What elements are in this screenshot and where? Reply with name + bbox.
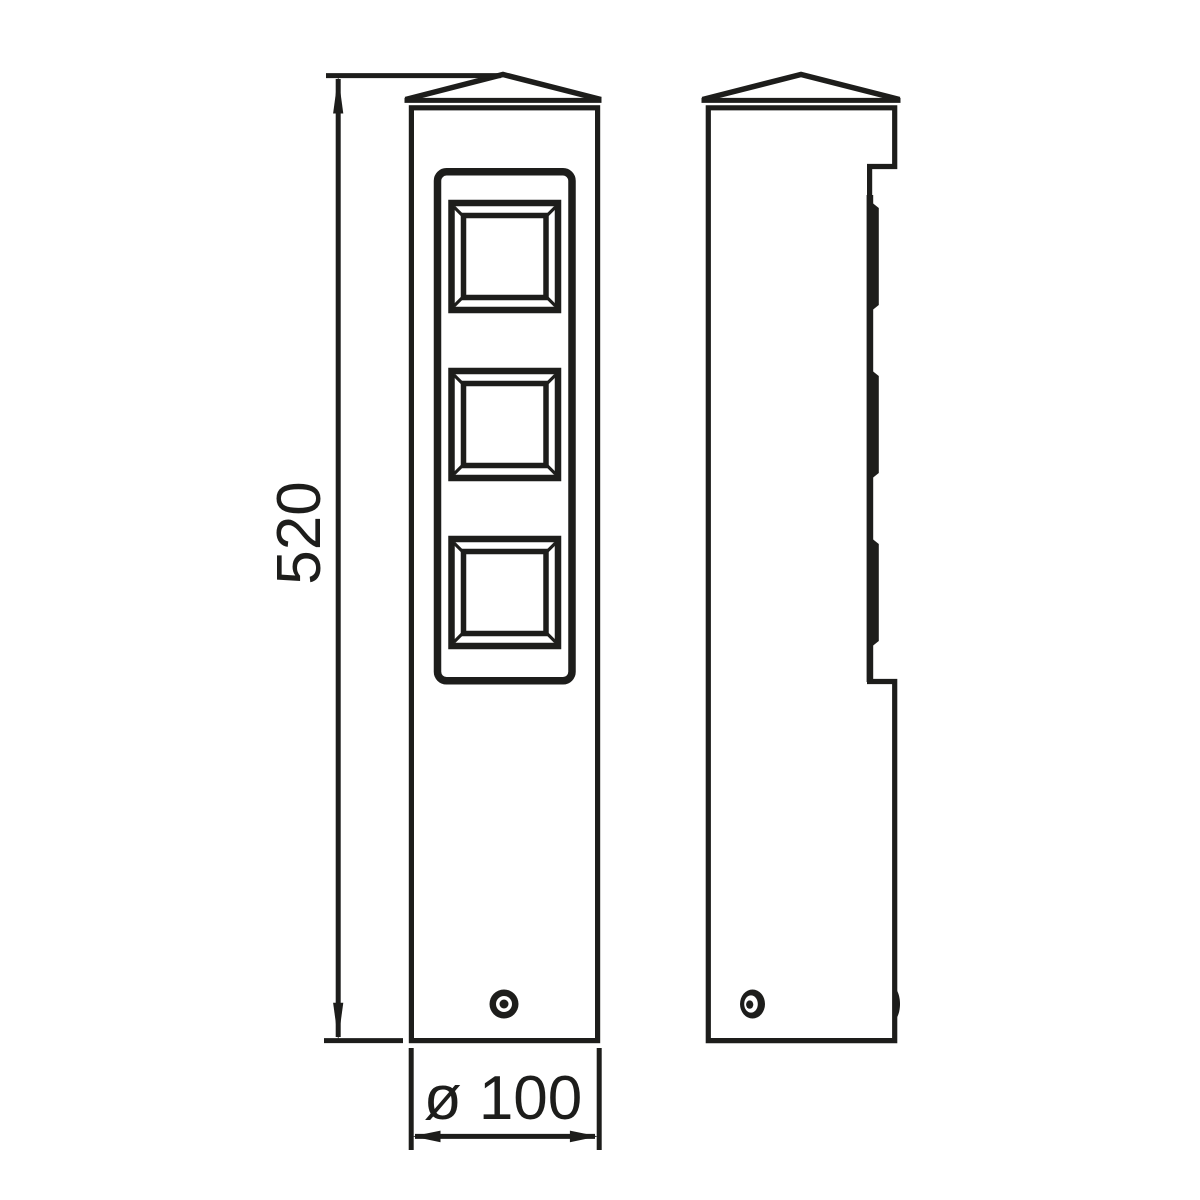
bevel-rib-3: [870, 537, 879, 648]
side-screw-bump: [893, 986, 901, 1022]
height-dimension-label: 520: [265, 481, 334, 584]
bevel-rib-1: [870, 201, 879, 312]
louver-panel: [438, 172, 573, 681]
side-cap-roof: [703, 75, 900, 100]
width-dimension: ø 100: [411, 1048, 599, 1150]
front-view: [405, 75, 602, 1041]
front-cap-roof: [406, 75, 602, 100]
front-screw-icon: [490, 990, 519, 1019]
side-view: [702, 75, 901, 1041]
side-screw-icon: [740, 990, 765, 1019]
bevel-rib-2: [870, 369, 879, 480]
bollard-dimension-drawing: 520 ø 100: [0, 0, 1200, 1200]
screw-center-dot: [500, 1000, 509, 1009]
arrowhead-down-icon: [333, 1003, 343, 1041]
width-dimension-label: ø 100: [424, 1064, 583, 1133]
drawing-canvas: 520 ø 100: [0, 0, 1200, 1200]
screw-center-dot: [746, 1000, 753, 1008]
side-louver-band: [867, 195, 879, 682]
arrowhead-up-icon: [333, 76, 343, 114]
